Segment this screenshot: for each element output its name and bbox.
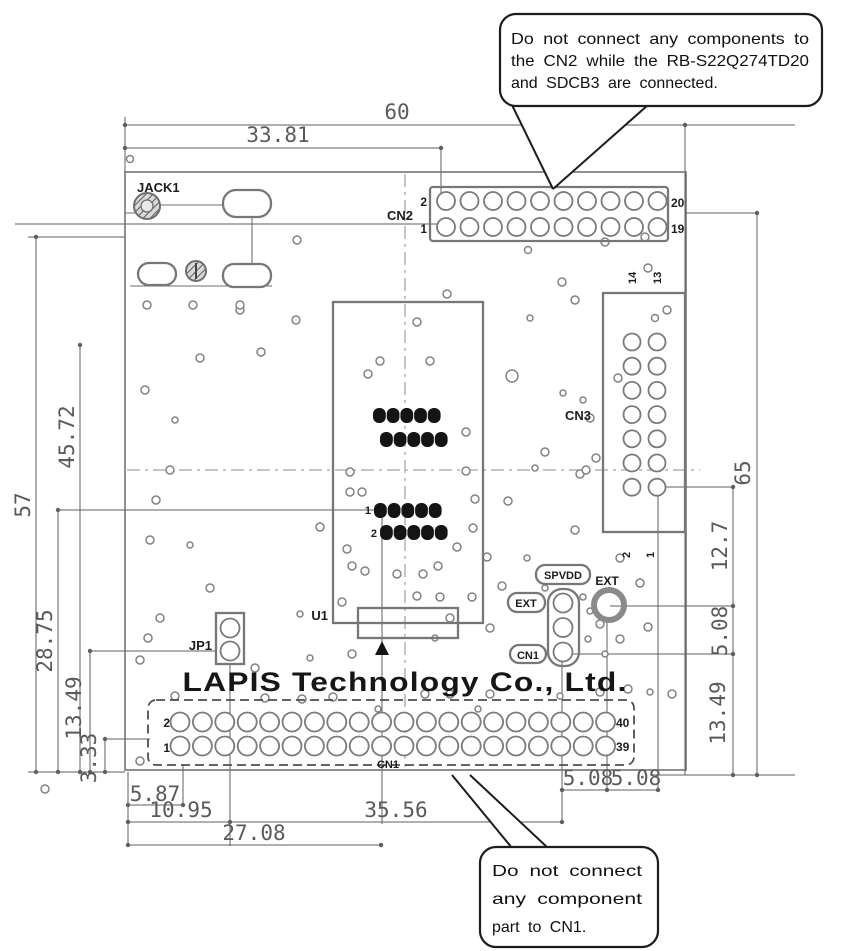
cn3-pin-hole: [624, 406, 641, 423]
via: [571, 526, 579, 534]
brand-silkscreen: LAPIS Technology Co., Ltd.: [183, 667, 628, 697]
via: [560, 390, 566, 396]
cn2-pin-hole: [461, 192, 479, 210]
u1-contact-dot: [435, 432, 448, 447]
u1-contact-dot: [421, 525, 434, 540]
u1-contact-dot: [387, 408, 400, 423]
dim-tick: [56, 770, 60, 774]
via: [307, 655, 313, 661]
cn3-body: [603, 293, 685, 532]
dim-13-49-right: 13.49: [706, 681, 730, 744]
u1-contact-dot: [394, 525, 407, 540]
via: [166, 466, 174, 474]
via: [636, 579, 644, 587]
dim-tick: [126, 843, 130, 847]
dim-tick: [34, 770, 38, 774]
dim-65: 65: [731, 460, 755, 485]
cn2-pin19: 19: [671, 222, 685, 236]
via: [663, 306, 671, 314]
cn2-connector: [430, 187, 668, 241]
jp1-pin-hole: [221, 619, 240, 638]
u1-contact-dot: [407, 432, 420, 447]
cn2-pin-hole: [578, 218, 596, 236]
via: [602, 651, 608, 657]
dim-3-33: 3.33: [77, 733, 101, 784]
dim-tick: [755, 773, 759, 777]
cn1-pin-hole: [484, 737, 503, 756]
dim-tick: [123, 146, 127, 150]
cn2-pin-hole: [484, 192, 502, 210]
via: [434, 562, 442, 570]
cn3-pin1: 1: [645, 552, 657, 558]
cn1-pin-hole: [260, 737, 279, 756]
u1-pin1: 1: [365, 505, 371, 517]
dim-tick: [88, 649, 92, 653]
via: [358, 488, 366, 496]
cn3-pin-hole: [649, 358, 666, 375]
dim-10-95: 10.95: [149, 798, 212, 822]
dimension-text: 60 33.81 57 45.72 28.75 13.49 3.33 5.87 …: [11, 100, 755, 845]
cn2-pin-hole: [625, 192, 643, 210]
dim-5-08-right: 5.08: [708, 606, 732, 657]
aux-pin-hole: [554, 643, 573, 662]
ext-pad-label: EXT: [595, 574, 619, 588]
via: [141, 386, 149, 394]
cn1-pin-hole: [462, 737, 481, 756]
via: [446, 614, 454, 622]
callout-top: Do not connect any components to the CN2…: [500, 14, 822, 189]
cn1-pin40: 40: [616, 716, 630, 730]
cn1-pin-hole: [507, 737, 526, 756]
via: [571, 296, 579, 304]
jp1-pin-hole: [221, 642, 240, 661]
via: [498, 582, 506, 590]
jp1-pins: [221, 619, 240, 661]
cn2-pin-hole: [461, 218, 479, 236]
u1-contact-dot: [388, 503, 401, 518]
u1-contact-dot: [429, 503, 442, 518]
via: [647, 689, 653, 695]
u1-contact-dot: [380, 525, 393, 540]
cn2-pins: [437, 192, 667, 236]
cn3-pin14: 14: [627, 271, 639, 284]
cn1-pin-hole: [283, 713, 302, 732]
cn2-pin-hole: [531, 192, 549, 210]
u1-body: [333, 302, 483, 623]
via: [614, 374, 622, 382]
via: [375, 706, 381, 712]
callout-top-line3: and SDCB3 are connected.: [511, 75, 718, 92]
dim-tick: [126, 820, 130, 824]
dim-tick: [123, 123, 127, 127]
cn1-pin-hole: [529, 713, 548, 732]
cn3-pin-hole: [624, 430, 641, 447]
cn3-pin-hole: [649, 382, 666, 399]
via: [152, 496, 160, 504]
dim-tick: [103, 770, 107, 774]
cn2-pin-hole: [508, 218, 526, 236]
callout-top-line1: Do not connect any components to: [511, 31, 809, 48]
cn1-pin-hole: [215, 737, 234, 756]
via: [206, 584, 214, 592]
aux-pin-hole: [554, 594, 573, 613]
cn2-pin-hole: [484, 218, 502, 236]
cn2-pin-hole: [602, 218, 620, 236]
dim-tick: [683, 123, 687, 127]
cn1-pin-hole: [283, 737, 302, 756]
via: [376, 357, 384, 365]
cn1-pin-hole: [260, 713, 279, 732]
cn2-pin1: 1: [420, 222, 427, 236]
spvdd-label: SPVDD: [544, 570, 582, 582]
ext-test-pad: [594, 590, 624, 620]
via: [156, 614, 164, 622]
drawing-canvas: JACK1 CN2 2 1 20 19 14 13 2 1 CN3 1 2 U1…: [0, 0, 850, 951]
via: [558, 278, 566, 286]
cn1-pin-hole: [462, 713, 481, 732]
via: [171, 692, 179, 700]
callout-bottom-line3: part to CN1.: [492, 919, 586, 936]
cn1-connector: [148, 700, 634, 765]
jp1-jumper: [216, 613, 244, 664]
cn3-label: CN3: [565, 408, 591, 423]
via: [542, 585, 548, 591]
via: [462, 428, 470, 436]
jack1-footprint: [130, 190, 272, 287]
callout-bottom-tail: [452, 775, 548, 849]
via: [462, 467, 470, 475]
via: [652, 315, 659, 322]
cn1-pin-hole: [372, 713, 391, 732]
cn3-pin-hole: [649, 455, 666, 472]
callout-bottom-line2: any component: [492, 891, 643, 908]
cn2-pin-hole: [649, 218, 667, 236]
via: [525, 247, 532, 254]
cn1-pin-hole: [596, 713, 615, 732]
dim-57: 57: [11, 492, 35, 517]
via: [469, 524, 477, 532]
cn2-pin-hole: [649, 192, 667, 210]
via: [453, 543, 461, 551]
cn1-pin-hole: [171, 737, 190, 756]
cn1-pin-hole: [551, 737, 570, 756]
cn1-pin-hole: [417, 737, 436, 756]
via: [292, 316, 300, 324]
via: [187, 542, 193, 548]
via: [641, 233, 649, 241]
dim-tick: [439, 146, 443, 150]
cn1-pin-hole: [484, 713, 503, 732]
u1-contact-dot: [401, 503, 414, 518]
u1-contact-dot: [373, 408, 386, 423]
u1-label: U1: [311, 608, 328, 623]
dim-tick: [34, 235, 38, 239]
dim-5-08-b: 5.08: [611, 766, 662, 790]
cn1-pin-hole: [305, 713, 324, 732]
cn1-pin-hole: [596, 737, 615, 756]
cn3-pin-hole: [649, 334, 666, 351]
via: [364, 370, 372, 378]
cn1-pin-hole: [238, 713, 257, 732]
dim-27-08: 27.08: [222, 821, 285, 845]
via: [582, 466, 590, 474]
cn3-pin-hole: [624, 358, 641, 375]
callout-bottom-line1: Do not connect: [492, 863, 643, 880]
jack1-pad: [223, 264, 271, 287]
via: [136, 656, 144, 664]
via: [580, 594, 586, 600]
dim-tick: [379, 843, 383, 847]
cn1-pin1: 1: [163, 741, 170, 755]
via: [361, 567, 369, 575]
cn2-label: CN2: [387, 208, 413, 223]
via: [468, 593, 476, 601]
cn2-pin-hole: [555, 192, 573, 210]
cn3-pin-hole: [624, 382, 641, 399]
via: [471, 495, 479, 503]
jack1-pad: [138, 263, 176, 285]
via-field: [41, 233, 676, 793]
u1-contact-dot: [414, 408, 427, 423]
cn3-pin-hole: [649, 479, 666, 496]
aux-header-pins: [554, 594, 573, 662]
cn3-pin-hole: [649, 406, 666, 423]
cn1-pin-hole: [193, 713, 212, 732]
via: [475, 706, 481, 712]
cn1-pin-hole: [507, 713, 526, 732]
cn2-pin-hole: [437, 218, 455, 236]
via: [136, 757, 144, 765]
via: [343, 545, 351, 553]
u1-contact-dots: [373, 408, 448, 540]
via: [316, 523, 324, 531]
cn1-label: CN1: [377, 759, 399, 771]
cn2-pin-hole: [602, 192, 620, 210]
u1-pin2: 2: [371, 528, 377, 540]
jack1-hole-center: [141, 200, 153, 212]
cn1-pin-hole: [238, 737, 257, 756]
cn1-box-label: CN1: [517, 650, 539, 662]
u1-contact-dot: [421, 432, 434, 447]
cn1-pin-hole: [439, 737, 458, 756]
via: [338, 598, 346, 606]
cn2-pin-hole: [508, 192, 526, 210]
via: [413, 592, 421, 600]
cn2-pin-hole: [555, 218, 573, 236]
ext-box-label: EXT: [515, 598, 537, 610]
cn1-pin-hole: [574, 737, 593, 756]
via: [504, 497, 512, 505]
via: [293, 236, 301, 244]
cn1-pin-hole: [551, 713, 570, 732]
jp1-label: JP1: [189, 638, 212, 653]
dim-45-72: 45.72: [55, 405, 79, 468]
via: [644, 264, 652, 272]
callout-bottom: Do not connect any component part to CN1…: [452, 775, 658, 947]
u1-contact-dot: [380, 432, 393, 447]
via: [257, 348, 265, 356]
via: [127, 156, 134, 163]
cn2-pin20: 20: [671, 196, 685, 210]
cn3-pin-hole: [624, 455, 641, 472]
via: [196, 354, 204, 362]
cn2-pin-hole: [531, 218, 549, 236]
cn1-pin-hole: [327, 737, 346, 756]
dim-tick: [731, 773, 735, 777]
dim-60: 60: [384, 100, 409, 124]
pin1-triangle-marker: [375, 641, 389, 655]
via: [443, 290, 451, 298]
u1-contact-dot: [394, 432, 407, 447]
dim-tick: [78, 343, 82, 347]
via: [524, 555, 530, 561]
cn2-pin-hole: [578, 192, 596, 210]
dim-tick: [103, 737, 107, 741]
via: [436, 593, 444, 601]
cn1-pin-hole: [305, 737, 324, 756]
cn1-pin-hole: [395, 713, 414, 732]
via: [143, 301, 151, 309]
via: [592, 454, 600, 462]
via: [644, 623, 652, 631]
via: [348, 562, 356, 570]
u1-contact-dot: [374, 503, 387, 518]
cn1-pin-hole: [215, 713, 234, 732]
cn1-pin39: 39: [616, 740, 630, 754]
u1-contact-dot: [435, 525, 448, 540]
cn1-pin-hole: [395, 737, 414, 756]
jack1-pad: [223, 190, 271, 217]
cn1-pin-hole: [439, 713, 458, 732]
via: [41, 785, 49, 793]
cn3-pin2: 2: [621, 552, 633, 558]
cn2-pin-hole: [625, 218, 643, 236]
via: [426, 357, 434, 365]
cn3-pin-hole: [649, 430, 666, 447]
dim-tick: [560, 820, 564, 824]
dim-35-56: 35.56: [364, 798, 427, 822]
via: [483, 553, 491, 561]
dim-tick: [755, 211, 759, 215]
via: [419, 570, 427, 578]
cn1-pin-hole: [574, 713, 593, 732]
dim-5-08-a: 5.08: [563, 766, 614, 790]
cn1-pin-hole: [193, 737, 212, 756]
dim-12-7: 12.7: [708, 521, 732, 572]
cn1-pin-hole: [350, 713, 369, 732]
u1-contact-dot: [428, 408, 441, 423]
via: [146, 536, 154, 544]
cn3-connector: [603, 293, 685, 532]
cn1-pins: [171, 713, 616, 756]
cn1-pin-hole: [372, 737, 391, 756]
cn2-pin2: 2: [420, 195, 427, 209]
u1-contact-dot: [415, 503, 428, 518]
dim-tick: [56, 508, 60, 512]
pcb-dimension-drawing: JACK1 CN2 2 1 20 19 14 13 2 1 CN3 1 2 U1…: [0, 0, 850, 951]
jack1-label: JACK1: [137, 180, 180, 195]
via: [236, 301, 244, 309]
via: [297, 611, 303, 617]
callout-top-line2: the CN2 while the RB-S22Q274TD20: [511, 53, 809, 70]
via: [144, 634, 152, 642]
via: [348, 650, 356, 658]
u1-contact-dot: [407, 525, 420, 540]
cn3-pins: [624, 334, 666, 496]
cn3-pin-hole: [624, 479, 641, 496]
cn3-pin13: 13: [652, 272, 664, 284]
u1-contact-dot: [400, 408, 413, 423]
dim-13-49-left: 13.49: [62, 676, 86, 739]
via: [413, 318, 421, 326]
dim-33-81: 33.81: [246, 123, 309, 147]
cn1-pin-hole: [171, 713, 190, 732]
via: [486, 624, 494, 632]
cn1-pin-hole: [529, 737, 548, 756]
cn1-pin-hole: [417, 713, 436, 732]
cn1-pin-hole: [350, 737, 369, 756]
dim-28-75: 28.75: [33, 609, 57, 672]
cn1-pin-hole: [327, 713, 346, 732]
via: [172, 417, 178, 423]
via: [393, 570, 401, 578]
aux-pin-hole: [554, 618, 573, 637]
via: [585, 636, 591, 642]
via: [346, 468, 354, 476]
via: [616, 635, 624, 643]
cn2-pin-hole: [437, 192, 455, 210]
u1-socket: [333, 302, 483, 655]
via: [580, 397, 586, 403]
via: [541, 448, 549, 456]
via: [346, 488, 354, 496]
via: [668, 690, 676, 698]
via: [189, 301, 197, 309]
cn3-pin-hole: [624, 334, 641, 351]
via: [506, 370, 518, 382]
cn1-pin2: 2: [163, 716, 170, 730]
via: [532, 465, 538, 471]
via: [527, 315, 533, 321]
